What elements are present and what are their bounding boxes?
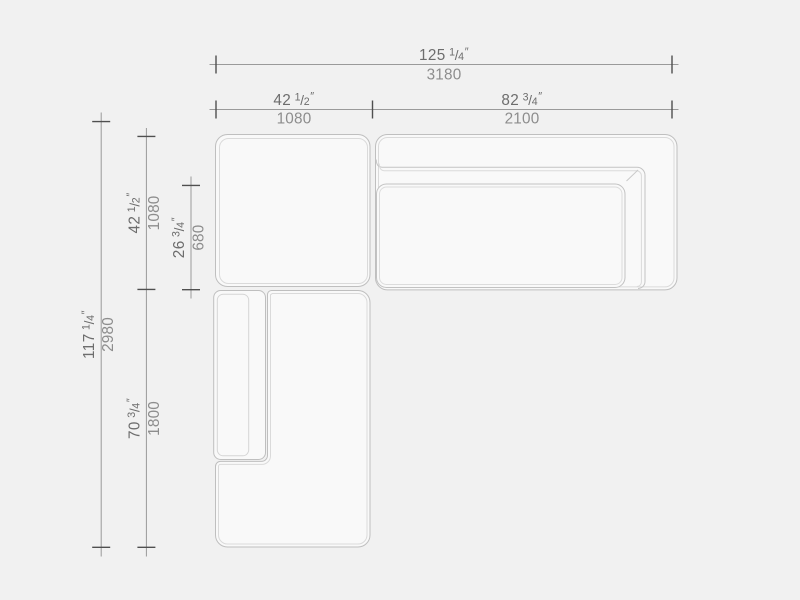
svg-text:3180: 3180 — [427, 67, 462, 84]
svg-text:2100: 2100 — [505, 111, 540, 128]
svg-text:1080: 1080 — [277, 111, 312, 128]
svg-text:680: 680 — [191, 225, 208, 251]
svg-text:2980: 2980 — [100, 317, 117, 352]
svg-text:1800: 1800 — [146, 401, 163, 436]
svg-text:1080: 1080 — [146, 195, 163, 230]
